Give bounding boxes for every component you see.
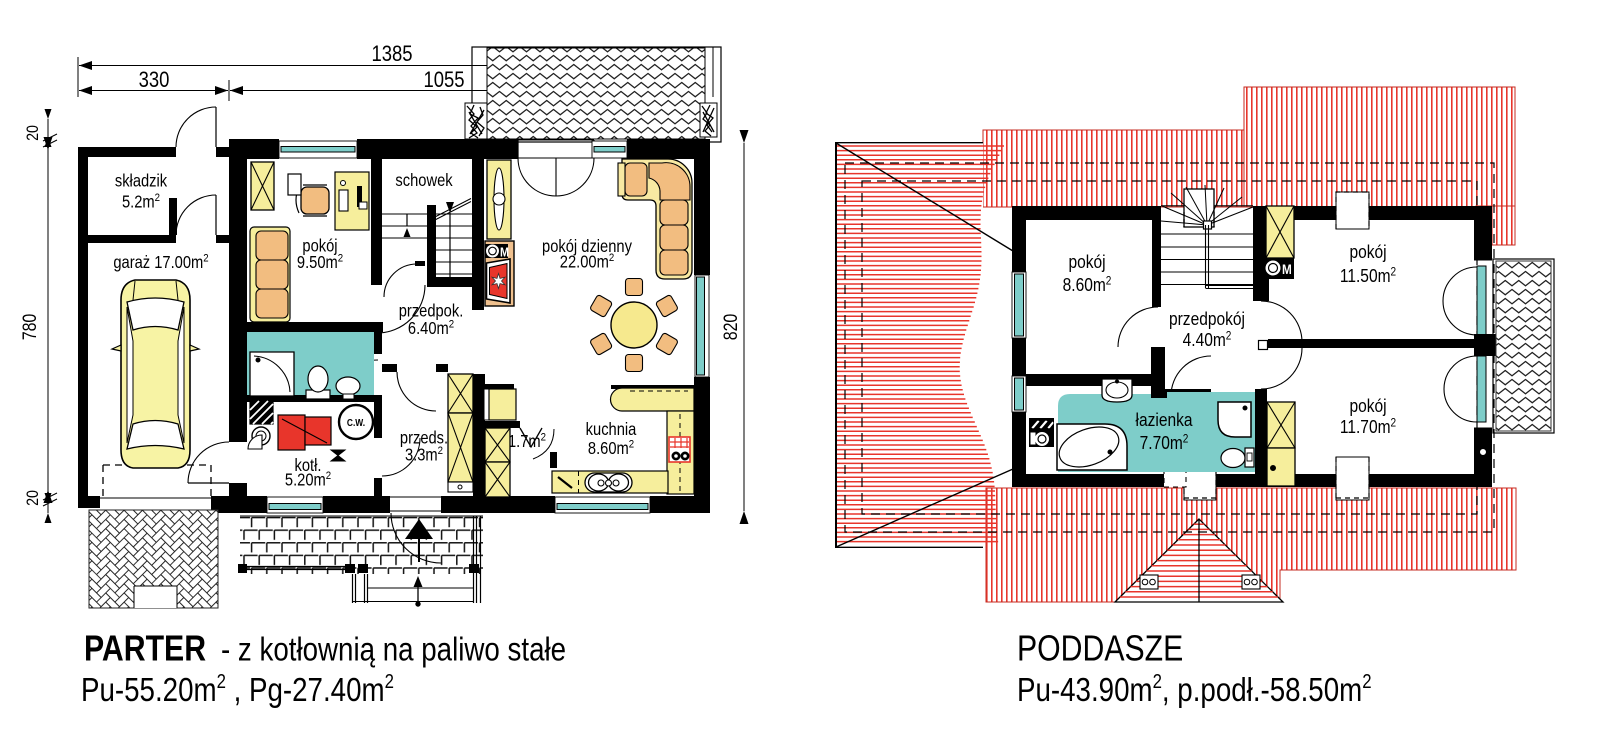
svg-text:820: 820 [720, 313, 742, 340]
svg-text:schowek: schowek [395, 171, 453, 190]
svg-text:kuchnia: kuchnia [586, 420, 637, 439]
svg-text:PODDASZE: PODDASZE [1017, 629, 1183, 669]
svg-text:łazienka: łazienka [1135, 410, 1192, 431]
svg-text:3.3m2: 3.3m2 [405, 444, 443, 465]
svg-text:Pu-43.90m2, p.podł.-58.50m2: Pu-43.90m2, p.podł.-58.50m2 [1017, 670, 1372, 709]
svg-text:4.40m2: 4.40m2 [1183, 330, 1232, 351]
svg-text:5.2m2: 5.2m2 [122, 191, 160, 212]
svg-text:M: M [1282, 261, 1292, 277]
svg-text:22.00m2: 22.00m2 [560, 251, 614, 272]
svg-text:11.70m2: 11.70m2 [1340, 417, 1396, 438]
svg-text:garaż 17.00m2: garaż 17.00m2 [113, 252, 208, 273]
svg-text:przedpokój: przedpokój [1169, 309, 1245, 330]
svg-text:7.70m2: 7.70m2 [1140, 433, 1189, 454]
svg-text:780: 780 [19, 313, 41, 340]
svg-text:składzik: składzik [115, 171, 168, 190]
svg-text:11.50m2: 11.50m2 [1340, 266, 1396, 287]
svg-text:330: 330 [139, 69, 170, 93]
svg-text:pokój: pokój [1349, 242, 1386, 263]
svg-text:Pu-55.20m2 , Pg-27.40m2: Pu-55.20m2 , Pg-27.40m2 [81, 670, 394, 709]
svg-text:20: 20 [24, 490, 42, 506]
svg-text:- z kotłownią na paliwo stałe: - z kotłownią na paliwo stałe [221, 631, 566, 668]
svg-text:9.50m2: 9.50m2 [297, 252, 343, 273]
svg-text:6.40m2: 6.40m2 [408, 318, 454, 339]
svg-text:M: M [500, 245, 509, 260]
svg-text:pokój: pokój [1349, 396, 1386, 417]
svg-text:20: 20 [24, 125, 42, 141]
svg-text:5.20m2: 5.20m2 [285, 469, 331, 490]
svg-text:1055: 1055 [423, 69, 464, 93]
svg-text:8.60m2: 8.60m2 [1063, 275, 1112, 296]
svg-text:pokój: pokój [1068, 252, 1105, 273]
svg-text:8.60m2: 8.60m2 [588, 438, 634, 459]
svg-text:1385: 1385 [371, 43, 412, 67]
svg-text:PARTER: PARTER [84, 629, 206, 669]
svg-text:C.W.: C.W. [347, 417, 365, 428]
